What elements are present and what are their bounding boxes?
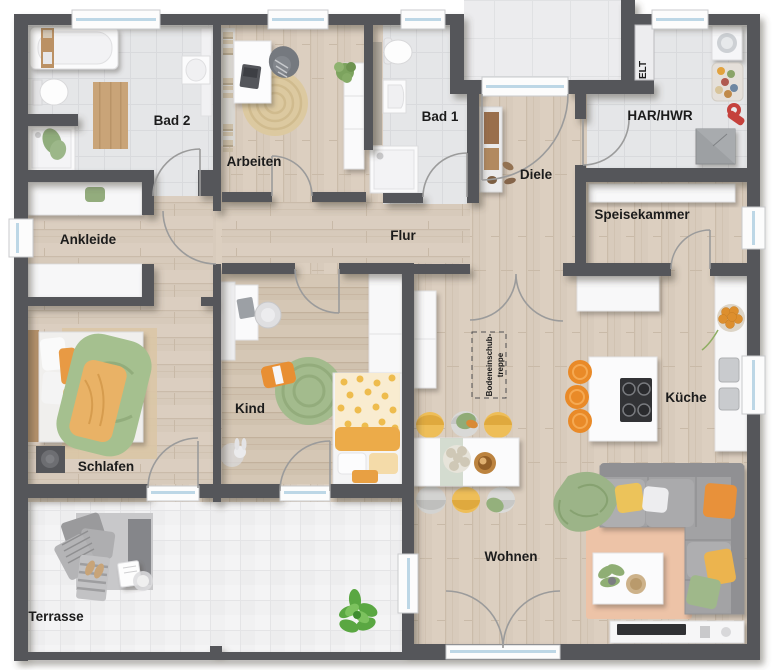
svg-text:Schlafen: Schlafen	[78, 459, 134, 474]
svg-text:Küche: Küche	[665, 390, 707, 405]
svg-text:Arbeiten: Arbeiten	[227, 154, 282, 169]
svg-text:HAR/HWR: HAR/HWR	[627, 108, 692, 123]
svg-text:Flur: Flur	[390, 228, 416, 243]
svg-text:Bodeneinschub-: Bodeneinschub-	[485, 333, 494, 396]
svg-text:Diele: Diele	[520, 167, 553, 182]
svg-text:Bad 1: Bad 1	[422, 109, 459, 124]
svg-text:Ankleide: Ankleide	[60, 232, 117, 247]
svg-text:ELT: ELT	[638, 61, 649, 79]
svg-text:Speisekammer: Speisekammer	[594, 207, 690, 222]
svg-text:Kind: Kind	[235, 401, 265, 416]
svg-text:Bad 2: Bad 2	[154, 113, 191, 128]
svg-text:Wohnen: Wohnen	[485, 549, 538, 564]
svg-text:treppe: treppe	[496, 352, 505, 377]
svg-text:Terrasse: Terrasse	[28, 609, 84, 624]
